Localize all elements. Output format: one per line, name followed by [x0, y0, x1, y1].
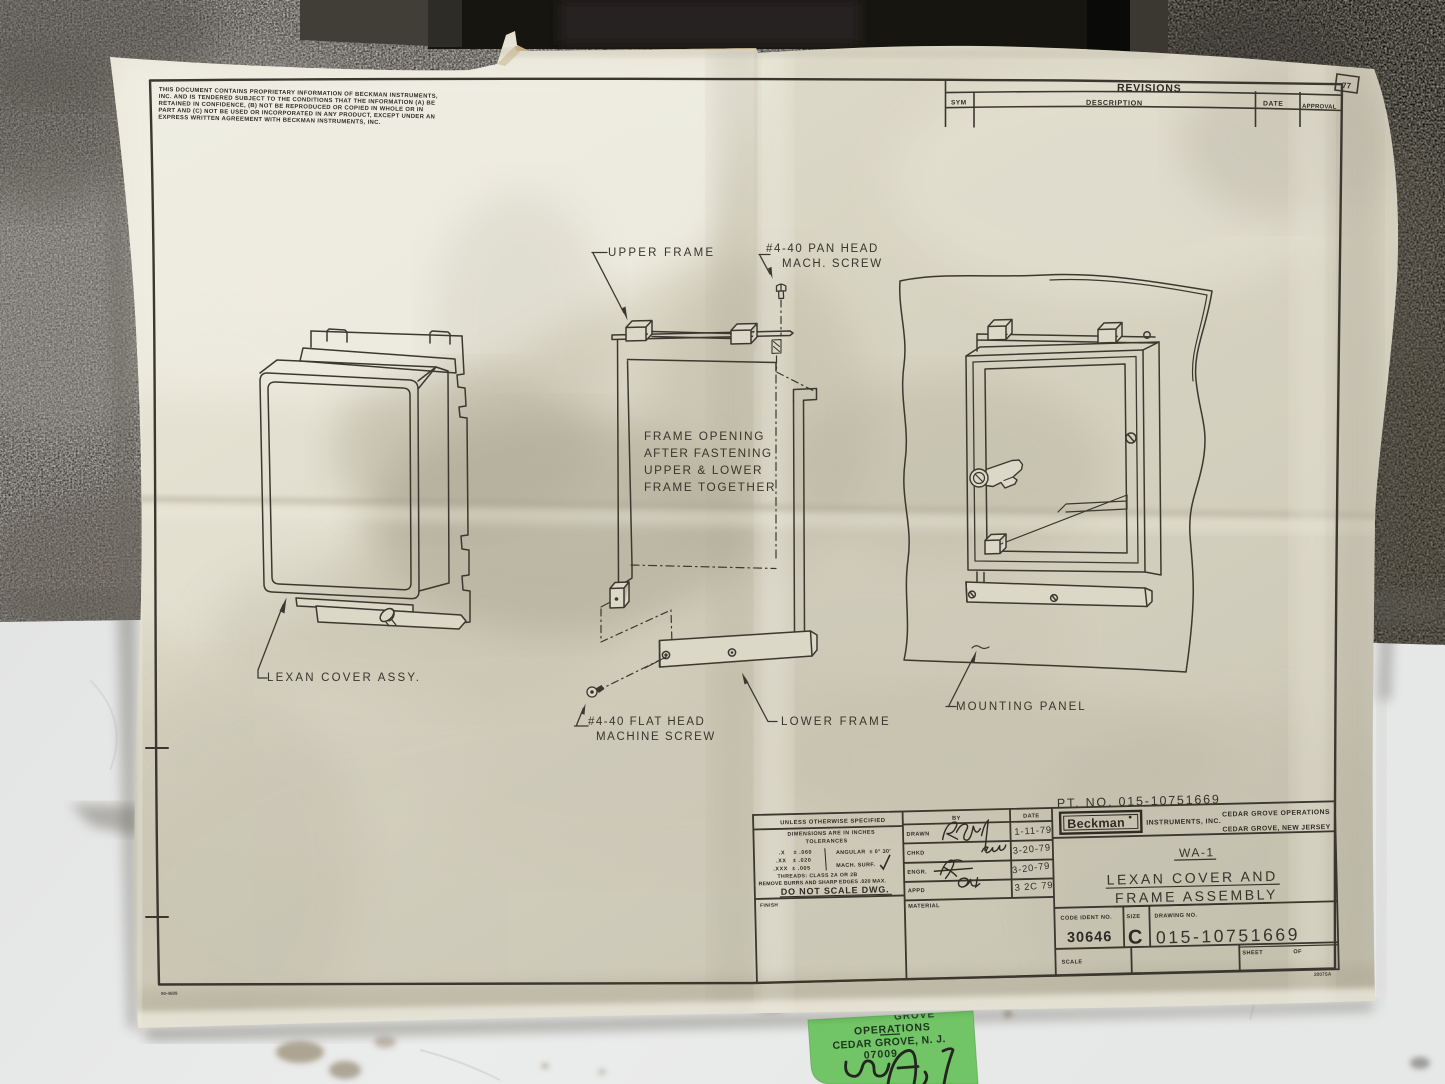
svg-text:MACHINE SCREW: MACHINE SCREW [596, 731, 716, 743]
svg-text:FINISH: FINISH [760, 902, 778, 908]
svg-text:SCALE: SCALE [1061, 959, 1082, 965]
svg-text:FRAME OPENING: FRAME OPENING [644, 429, 765, 443]
svg-text:REVISIONS: REVISIONS [1117, 82, 1182, 95]
svg-text:APPROVAL: APPROVAL [1302, 104, 1337, 111]
svg-text:DATE: DATE [1263, 101, 1284, 108]
svg-text:Beckman: Beckman [1067, 816, 1125, 831]
svg-text:TOLERANCES: TOLERANCES [806, 838, 848, 845]
svg-text:.XX ± .020: .XX ± .020 [776, 858, 811, 865]
svg-text:LEXAN COVER ASSY.: LEXAN COVER ASSY. [267, 672, 421, 684]
svg-text:DATE: DATE [1023, 813, 1040, 819]
svg-text:DRAWN: DRAWN [906, 831, 929, 838]
svg-text:77: 77 [1342, 81, 1352, 90]
svg-text:07009: 07009 [863, 1048, 898, 1062]
svg-text:DESCRIPTION: DESCRIPTION [1086, 98, 1143, 108]
svg-text:1-11-79: 1-11-79 [1014, 825, 1052, 838]
svg-text:BY: BY [952, 816, 961, 822]
svg-text:2007SA: 2007SA [1314, 972, 1332, 978]
svg-text:CODE IDENT NO.: CODE IDENT NO. [1060, 915, 1112, 922]
svg-text:SIZE: SIZE [1126, 914, 1140, 920]
svg-text:MATERIAL: MATERIAL [908, 903, 940, 910]
svg-text:MACH. SURF.: MACH. SURF. [836, 862, 875, 869]
svg-text:AFTER FASTENING: AFTER FASTENING [644, 446, 772, 460]
svg-text:C: C [1128, 926, 1143, 948]
svg-text:MACH. SCREW: MACH. SCREW [782, 258, 883, 270]
svg-text:SHEET: SHEET [1242, 950, 1263, 956]
svg-text:ENGR.: ENGR. [907, 869, 927, 875]
svg-text:WA-1: WA-1 [1179, 845, 1215, 860]
svg-text:#4-40 PAN HEAD: #4-40 PAN HEAD [766, 243, 879, 255]
svg-text:LOWER FRAME: LOWER FRAME [781, 716, 891, 728]
svg-text:APPD: APPD [908, 888, 925, 894]
svg-text:#4-40 FLAT HEAD: #4-40 FLAT HEAD [588, 716, 705, 728]
svg-text:UPPER FRAME: UPPER FRAME [608, 247, 715, 259]
svg-text:.X ± .060: .X ± .060 [779, 850, 812, 857]
svg-text:UPPER & LOWER: UPPER & LOWER [644, 463, 763, 477]
svg-text:DRAWING NO.: DRAWING NO. [1154, 913, 1197, 920]
svg-text:30646: 30646 [1067, 929, 1113, 946]
svg-text:OF: OF [1293, 949, 1302, 955]
svg-text:SYM: SYM [951, 100, 967, 107]
svg-text:MOUNTING PANEL: MOUNTING PANEL [956, 701, 1087, 713]
svg-text:.XXX ± .005: .XXX ± .005 [773, 866, 811, 873]
svg-text:CHKD: CHKD [907, 850, 925, 856]
svg-text:FRAME TOGETHER: FRAME TOGETHER [644, 480, 776, 494]
svg-text:90-4689: 90-4689 [161, 991, 178, 996]
svg-text:015-10751669: 015-10751669 [1156, 924, 1301, 947]
